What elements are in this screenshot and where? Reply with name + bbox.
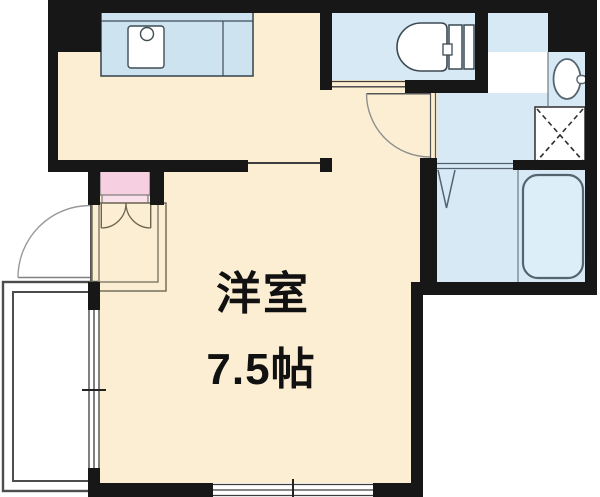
wall-washroom-left (420, 158, 437, 295)
washbasin-faucet-icon (577, 76, 586, 84)
kitchen-counter (101, 12, 253, 76)
washing-machine-space (535, 107, 585, 163)
floor-plan-page: 洋室 7.5帖 (0, 0, 600, 497)
main-room-floor (100, 162, 420, 483)
bathtub (518, 170, 583, 293)
wall-left-upper-stub (88, 172, 100, 205)
door-opening-floor (420, 93, 437, 158)
wall-bath-separator (513, 160, 585, 170)
kitchen-faucet-icon (141, 28, 154, 41)
wall-stub-kitchen (320, 158, 332, 172)
washroom-floor-top (488, 13, 548, 52)
closet-front (102, 195, 148, 203)
room-size-label: 7.5帖 (206, 345, 315, 394)
toilet-tank-back (464, 25, 474, 69)
wall-toilet-right (475, 0, 488, 93)
toilet-bowl (397, 23, 447, 71)
bathtub-body (523, 175, 583, 278)
wall-kitchen-left (48, 0, 58, 163)
balcony-outer-rail (3, 282, 97, 491)
wall-kitchen-right (320, 0, 332, 90)
toilet (397, 23, 474, 71)
floor-plan: 洋室 7.5帖 (0, 0, 600, 497)
wall-bath-bottom (411, 282, 597, 295)
wall-right (585, 0, 597, 295)
wall-left-mid-stub (88, 282, 100, 310)
balcony (3, 282, 97, 491)
toilet-flush-handle (443, 44, 452, 55)
room-name-label: 洋室 (216, 268, 310, 319)
wall-closet-right-stub (150, 172, 164, 205)
wall-bottom-left (88, 483, 213, 497)
closet-body (100, 171, 150, 195)
wall-kitchen-bottom (48, 160, 248, 172)
wall-main-right (411, 282, 423, 497)
